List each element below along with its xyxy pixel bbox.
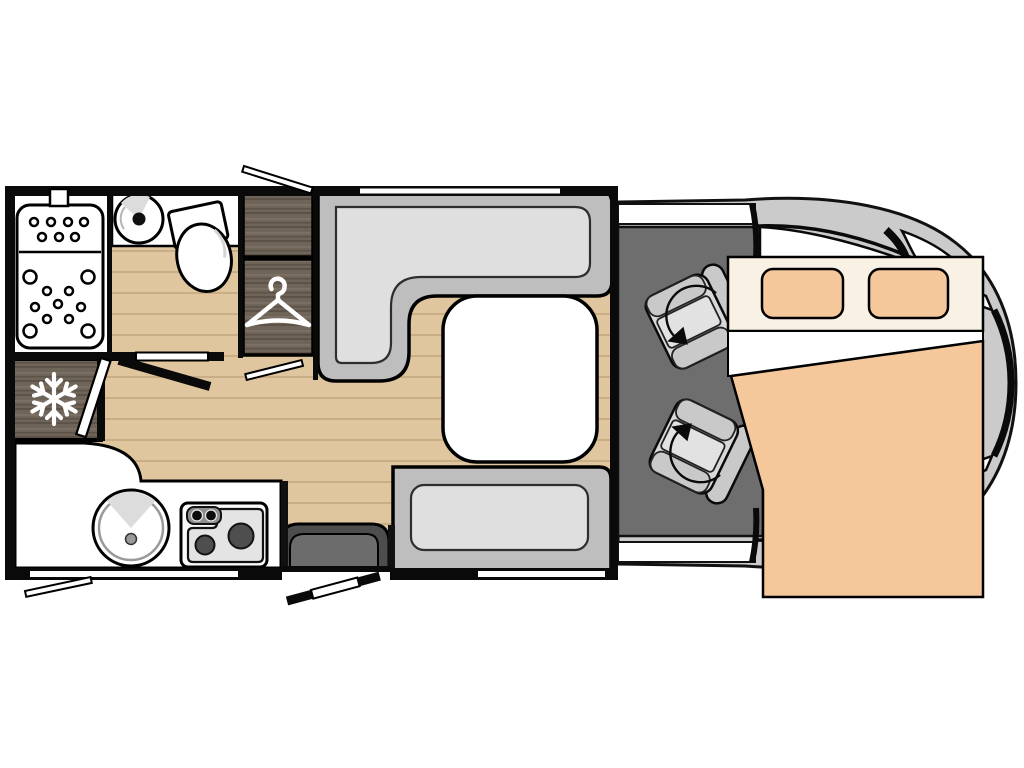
- shower-cabin: [15, 196, 107, 354]
- dinette-table: [443, 296, 597, 462]
- bench-seat-cushion: [411, 485, 588, 550]
- burner-small: [196, 536, 215, 555]
- window-bottom-right: [478, 571, 605, 577]
- sink-drain: [126, 534, 137, 545]
- cab-side-wall-bottom: [618, 542, 755, 562]
- wall-shower-divider: [107, 186, 112, 360]
- wall-below-shower: [5, 352, 110, 360]
- hanging-wardrobe: [243, 259, 313, 355]
- stove: [181, 503, 267, 567]
- bed-duvet: [731, 341, 983, 597]
- cab-side-wall-top: [618, 204, 755, 224]
- bench-seat: [393, 467, 611, 571]
- shower-tray: [17, 205, 103, 348]
- stove-knob: [192, 510, 203, 521]
- shower-wall-notch: [50, 189, 68, 206]
- step-bench-divider: [388, 525, 395, 572]
- wall-wardrobe-right: [313, 186, 318, 380]
- entrance-step: [281, 524, 389, 568]
- window-bottom-left: [30, 571, 238, 577]
- floorplan-canvas: [0, 0, 1024, 768]
- wall-wardrobe-left: [238, 186, 243, 358]
- drop-down-bed: [728, 257, 983, 597]
- entrance-step-inner: [290, 534, 378, 568]
- overhead-cabinet: [243, 189, 313, 257]
- entry-threshold: [282, 566, 390, 572]
- kitchen-sink: [93, 490, 169, 566]
- wardrobe: [243, 189, 313, 355]
- motorhome-floorplan: [0, 0, 1024, 768]
- washbasin-drain: [133, 213, 146, 226]
- bed-pillow-left: [762, 269, 843, 318]
- counter-step-divider: [281, 481, 288, 568]
- burner-large: [229, 524, 254, 549]
- wall-right: [610, 186, 618, 580]
- stove-knob: [206, 510, 217, 521]
- wall-left: [5, 186, 15, 580]
- bathroom-sliding-track: [136, 353, 208, 361]
- bed-pillow-right: [869, 269, 948, 318]
- window-top: [360, 189, 560, 194]
